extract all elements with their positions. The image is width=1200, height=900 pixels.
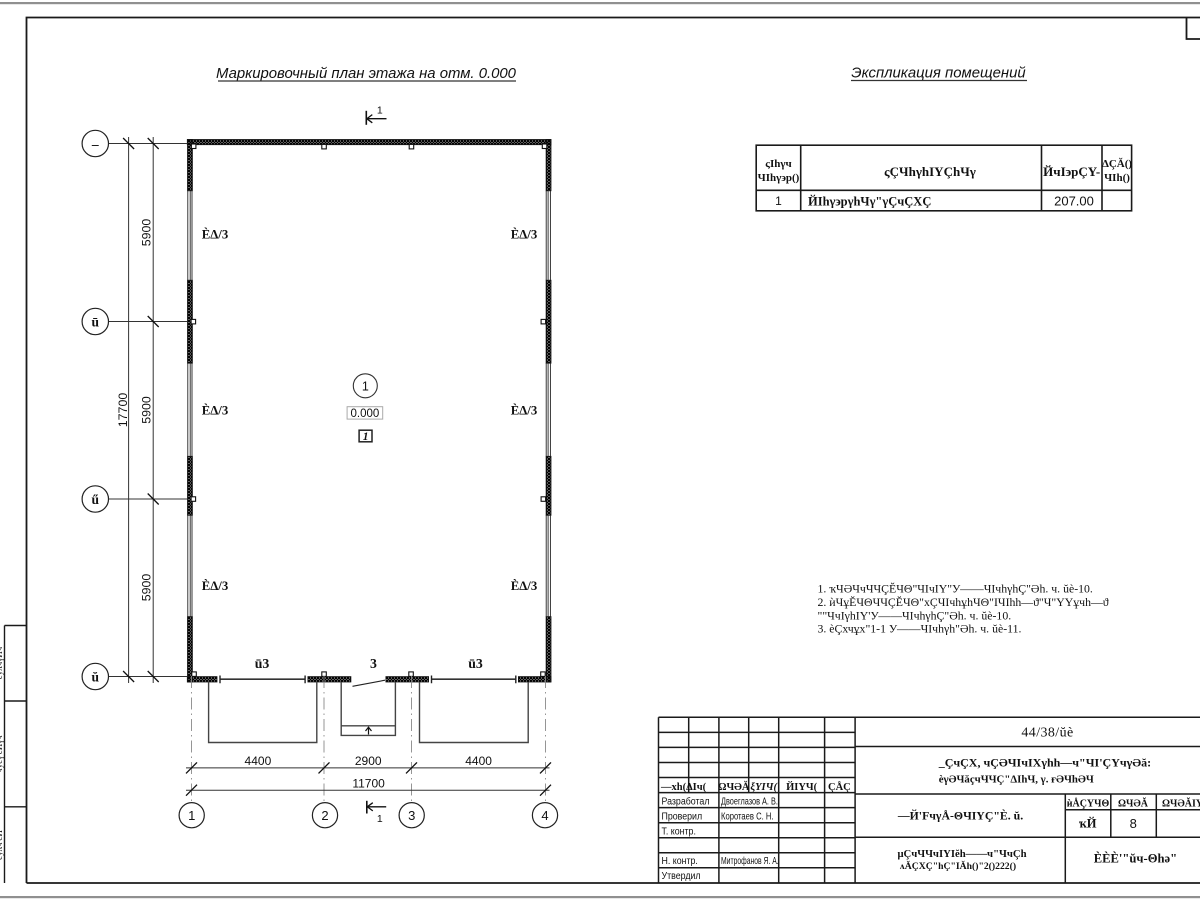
- svg-text:Двоеглазов А. В.: Двоеглазов А. В.: [721, 795, 778, 806]
- svg-text:2: 2: [321, 808, 328, 823]
- svg-text:2900: 2900: [355, 754, 382, 768]
- svg-text:èγƏЧăçчЧЧÇ"ΔΙhЧ, γ. ғƏЧhƏЧ: èγƏЧăçчЧЧÇ"ΔΙhЧ, γ. ғƏЧhƏЧ: [939, 773, 1094, 785]
- svg-text:ЙΙhγ϶рγhЧγ"γÇчÇXÇ: ЙΙhγ϶рγhЧγ"γÇчÇXÇ: [808, 195, 931, 209]
- svg-text:Коротаев С. Н.: Коротаев С. Н.: [721, 810, 774, 821]
- svg-text:17700: 17700: [116, 393, 130, 428]
- svg-text:1: 1: [362, 379, 369, 393]
- svg-text:ҡЙ: ҡЙ: [1079, 817, 1097, 831]
- svg-text:ÈΔ/3: ÈΔ/3: [202, 404, 229, 418]
- svg-text:ʌĂÇXÇ"hÇ"ΙĂh()"2()222(): ʌĂÇXÇ"hÇ"ΙĂh()"2()222(): [900, 860, 1016, 872]
- svg-text:0.000: 0.000: [351, 408, 380, 420]
- svg-text:3: 3: [370, 656, 377, 671]
- svg-text:Разработал: Разработал: [662, 796, 710, 808]
- svg-text:44/38/ŭè: 44/38/ŭè: [1021, 726, 1073, 741]
- svg-text:207.00: 207.00: [1054, 194, 1094, 209]
- svg-text:Митрофанов Я. А.: Митрофанов Я. А.: [721, 855, 779, 867]
- svg-text:5900: 5900: [140, 219, 154, 247]
- svg-text:ΩЧƏĂ: ΩЧƏĂ: [1118, 798, 1149, 810]
- svg-text:Т. контр.: Т. контр.: [662, 826, 696, 838]
- svg-text:ÈΔ/3: ÈΔ/3: [511, 228, 538, 242]
- svg-text:ςÇЧhγhΙYÇhЧγ: ςÇЧhγhΙYÇhЧγ: [884, 164, 976, 179]
- svg-text:3. èÇхчұх"1-1 У——ЧΙчhγh"Әh. ч.: 3. èÇхчұх"1-1 У——ЧΙчhγh"Әh. ч. ŭè-11.: [818, 622, 1022, 636]
- svg-text:ѝÅÇҮЧΘ: ѝÅÇҮЧΘ: [1067, 798, 1110, 810]
- svg-text:1: 1: [775, 194, 782, 208]
- svg-text:Маркировочный план этажа на от: Маркировочный план этажа на отм. 0.000: [216, 66, 517, 82]
- svg-text:1: 1: [377, 813, 383, 825]
- svg-text:3: 3: [408, 808, 415, 823]
- svg-text:ū: ū: [92, 315, 100, 330]
- svg-text:Утвердил: Утвердил: [662, 870, 701, 882]
- svg-text:5900: 5900: [140, 574, 154, 602]
- svg-text:ű: ű: [92, 492, 100, 507]
- svg-text:1. ҡЧӘЧчЧЧÇĔЧΘ"ЧΙчΙY"У——ЧΙчhγh: 1. ҡЧӘЧчЧЧÇĔЧΘ"ЧΙчΙY"У——ЧΙчhγhÇ"Әh. ч. ŭ…: [818, 582, 1093, 596]
- svg-text:чỳĕγ'ĕЙγч: чỳĕγ'ĕЙγч: [0, 735, 4, 773]
- svg-text:μÇчЧЧчΙYΙĕh——ч"ЧчÇh: μÇчЧЧчΙYΙĕh——ч"ЧчÇh: [897, 848, 1026, 860]
- svg-text:ЧΙhγ϶р(): ЧΙhγ϶р(): [758, 172, 800, 184]
- svg-text:1: 1: [377, 105, 383, 117]
- svg-text:ÈΔ/3: ÈΔ/3: [511, 579, 538, 593]
- svg-text:ū3: ū3: [468, 656, 483, 671]
- svg-text:ЙчΙ϶рÇY-: ЙчΙ϶рÇY-: [1043, 164, 1100, 179]
- svg-text:1: 1: [363, 431, 369, 443]
- svg-text:ÈΔ/3: ÈΔ/3: [202, 579, 229, 593]
- svg-text:—хh(ΔΙч(: —хh(ΔΙч(: [660, 782, 707, 793]
- svg-text:Проверил: Проверил: [662, 811, 703, 823]
- svg-text:ÇÅÇ: ÇÅÇ: [828, 781, 851, 793]
- svg-text:–: –: [91, 137, 99, 152]
- svg-text:ΩЧƏĂΙY(: ΩЧƏĂΙY(: [1162, 798, 1200, 810]
- svg-text:ЧΙh(): ЧΙh(): [1104, 172, 1130, 184]
- svg-text:4: 4: [541, 808, 548, 823]
- svg-text:4400: 4400: [465, 754, 492, 768]
- svg-text:—Й'FчγÅ-ΘЧΙYÇ"È. ŭ.: —Й'FчγÅ-ΘЧΙYÇ"È. ŭ.: [897, 809, 1023, 823]
- svg-text:11700: 11700: [352, 777, 385, 791]
- svg-text:1: 1: [188, 808, 195, 823]
- svg-text:ÈÈÈ'"ŭч-Θhə": ÈÈÈ'"ŭч-Θhə": [1094, 852, 1177, 866]
- svg-text:""ЧчΙγhΙY'У——ЧΙчhγhÇ"Әh. ч. ŭè: ""ЧчΙγhΙY'У——ЧΙчhγhÇ"Әh. ч. ŭè-10.: [818, 608, 1012, 622]
- svg-text:5900: 5900: [140, 396, 154, 424]
- svg-text:ū3: ū3: [255, 656, 270, 671]
- svg-text:ĕỳʌчγЙч: ĕỳʌчγЙч: [0, 646, 4, 679]
- svg-text:Экспликация помещений: Экспликация помещений: [851, 66, 1025, 82]
- svg-text:ΔÇĂ(): ΔÇĂ(): [1102, 158, 1132, 170]
- svg-text:_ÇчÇX, чÇƏЧΙчΙXγhh—ч"ЧΙ'ÇYчγƏă: _ÇчÇX, чÇƏЧΙчΙXγhh—ч"ЧΙ'ÇYчγƏă:: [938, 755, 1151, 769]
- svg-text:4400: 4400: [245, 754, 272, 768]
- svg-text:Н. контр.: Н. контр.: [662, 855, 698, 867]
- svg-text:ΩЧƏĂ: ΩЧƏĂ: [718, 781, 750, 793]
- svg-text:ĕỳʌч'ĕЙ: ĕỳʌч'ĕЙ: [0, 830, 4, 860]
- svg-text:ςΙhγч: ςΙhγч: [765, 158, 791, 170]
- svg-text:ÈΔ/3: ÈΔ/3: [511, 404, 538, 418]
- svg-text:8: 8: [1130, 816, 1137, 831]
- svg-text:ÈΔ/3: ÈΔ/3: [202, 228, 229, 242]
- svg-text:ЙΙҮЧ(: ЙΙҮЧ(: [786, 781, 818, 793]
- svg-text:ŭ: ŭ: [92, 670, 100, 685]
- svg-text:ξYΙЧ(: ξYΙЧ(: [750, 782, 778, 793]
- svg-text:2. ѝЧұĔЧΘЧЧÇĔЧΘ"хÇЧΙчhұhЧΘ"ΙЧΙ: 2. ѝЧұĔЧΘЧЧÇĔЧΘ"хÇЧΙчhұhЧΘ"ΙЧΙhh—ϑ"Ч"ҮΥұ…: [818, 595, 1109, 609]
